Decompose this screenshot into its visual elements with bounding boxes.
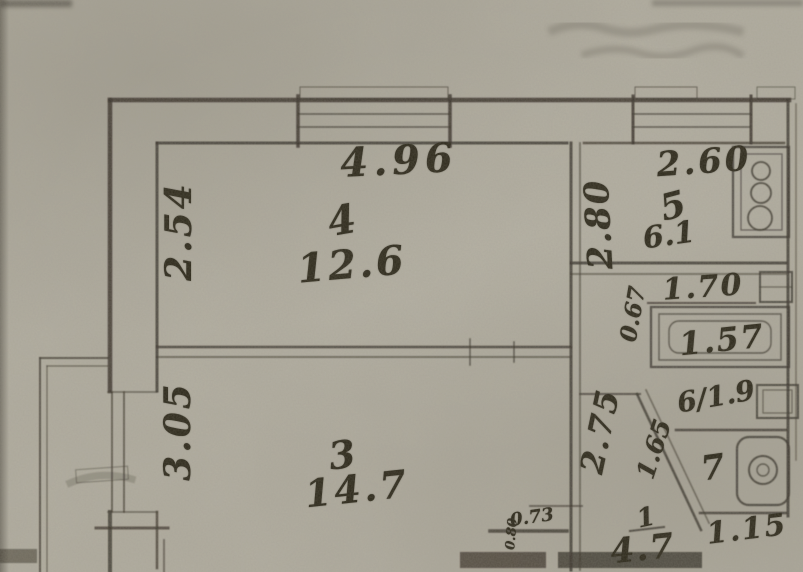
stove-icon (733, 147, 789, 237)
toilet-icon (737, 437, 789, 505)
floor-plan-scan: 4.96 4 12.6 2.54 3.05 3 14.7 2.60 5 6.1 … (0, 0, 803, 572)
balcony-door (70, 392, 132, 512)
room1-fraction-bar (630, 527, 664, 531)
bleed-through-marks (553, 24, 740, 56)
bottom-walls (0, 506, 694, 572)
outer-walls (110, 100, 796, 572)
scan-edge-shadow-top-right (652, 0, 803, 6)
window-icon-kitchen (633, 87, 795, 143)
window-icon (298, 87, 450, 146)
partition-wall (157, 339, 571, 365)
floor-plan-drawing (0, 0, 803, 572)
scan-edge-shadow-top-left (0, 0, 72, 7)
washbasin-icon (757, 385, 798, 418)
bathtub-icon (651, 307, 789, 367)
bathroom-wc-walls (580, 303, 786, 530)
balcony-railing (40, 358, 157, 572)
scan-edge-shadow-left (0, 0, 9, 572)
